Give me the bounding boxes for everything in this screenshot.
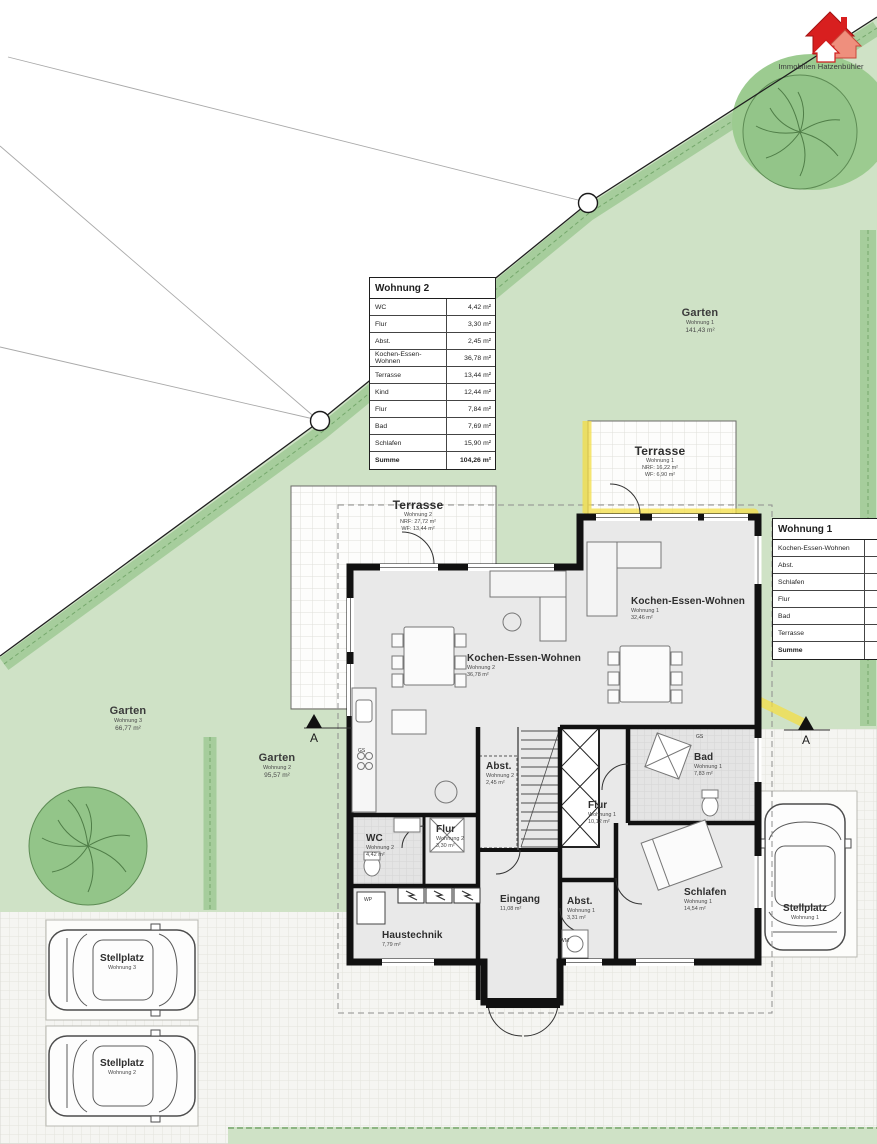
table-row: Kind12,44 m²: [370, 384, 495, 401]
row-label: Schlafen: [370, 435, 446, 451]
row-label: Kochen-Essen-Wohnen: [370, 350, 446, 366]
table-row: WC4,42 m²: [370, 299, 495, 316]
room-label-flur-w1: Flur Wohnung 1 10,12 m²: [588, 800, 616, 825]
area-table-wohnung-1: Wohnung 1 Kochen-Essen-Wohnen Abst. Schl…: [772, 518, 877, 660]
room-label-kochen-essen-wohnen-w1: Kochen-Essen-Wohnen Wohnung 1 32,46 m²: [631, 596, 745, 621]
row-value: 2,45 m²: [446, 333, 495, 349]
site-plan-drawing: [0, 0, 877, 1144]
row-value: 7,69 m²: [446, 418, 495, 434]
row-value: 7,84 m²: [446, 401, 495, 417]
label-wp: WP: [364, 897, 372, 903]
parking-label-wohnung-3: Stellplatz Wohnung 3: [62, 953, 182, 972]
row-value: 15,90 m²: [446, 435, 495, 451]
terrace-label-wohnung-2: Terrasse Wohnung 2 NRF: 27,72 m² WF: 13,…: [358, 498, 478, 532]
room-label-bad: Bad Wohnung 1 7,83 m²: [694, 752, 722, 777]
row-label: Summe: [773, 642, 864, 659]
room-label-eingang: Eingang 11,08 m²: [500, 894, 540, 913]
table-row: Bad7,69 m²: [370, 418, 495, 435]
row-label: Summe: [370, 452, 446, 469]
terrace-label-wohnung-1: Terrasse Wohnung 1 NRF: 16,22 m² WF: 6,9…: [600, 444, 720, 478]
table-row: Kochen-Essen-Wohnen36,78 m²: [370, 350, 495, 367]
row-value: [864, 557, 877, 573]
site-plan-canvas: Immobilien Hatzenbühler Wohnung 2 WC4,42…: [0, 0, 877, 1144]
label-gs-w2: GS: [358, 748, 365, 754]
row-value: 104,26 m²: [446, 452, 495, 469]
row-label: Schlafen: [773, 574, 864, 590]
table-row: Terrasse13,44 m²: [370, 367, 495, 384]
section-letter-left: A: [302, 731, 326, 745]
table-row: Abst.: [773, 557, 877, 574]
table-row: Schlafen15,90 m²: [370, 435, 495, 452]
row-label: Terrasse: [370, 367, 446, 383]
row-value: 4,42 m²: [446, 299, 495, 315]
row-value: [864, 540, 877, 556]
row-value: [864, 574, 877, 590]
room-label-schlafen: Schlafen Wohnung 1 14,54 m²: [684, 887, 726, 912]
room-label-abst-w1: Abst. Wohnung 1 3,31 m²: [567, 896, 595, 921]
row-label: Bad: [773, 608, 864, 624]
row-label: Kochen-Essen-Wohnen: [773, 540, 864, 556]
section-letter-right: A: [794, 733, 818, 747]
table-title: Wohnung 1: [773, 519, 877, 540]
tree-icon: [29, 787, 147, 905]
table-row: Flur3,30 m²: [370, 316, 495, 333]
table-row: Schlafen: [773, 574, 877, 591]
room-label-haustechnik: Haustechnik 7,79 m²: [382, 930, 443, 949]
table-row: Bad: [773, 608, 877, 625]
row-label: WC: [370, 299, 446, 315]
table-title: Wohnung 2: [370, 278, 495, 299]
room-label-abst-w2: Abst. Wohnung 2 2,45 m²: [486, 761, 514, 786]
row-label: Bad: [370, 418, 446, 434]
row-label: Flur: [370, 316, 446, 332]
row-value: 3,30 m²: [446, 316, 495, 332]
table-row: Kochen-Essen-Wohnen: [773, 540, 877, 557]
shaft: [561, 728, 599, 847]
table-row: Abst.2,45 m²: [370, 333, 495, 350]
garden-label-wohnung-1: Garten Wohnung 1 141,43 m²: [645, 307, 755, 335]
row-label: Kind: [370, 384, 446, 400]
room-label-wc: WC Wohnung 2 4,42 m²: [366, 833, 394, 858]
table-sum-row: Summe104,26 m²: [370, 452, 495, 469]
row-value: [864, 625, 877, 641]
label-gs-w1: GS: [696, 734, 703, 740]
row-value: [864, 642, 877, 659]
logo-text: Immobilien Hatzenbühler: [766, 62, 876, 71]
row-value: 36,78 m²: [446, 350, 495, 366]
row-label: Terrasse: [773, 625, 864, 641]
row-label: Flur: [370, 401, 446, 417]
area-table-wohnung-2: Wohnung 2 WC4,42 m² Flur3,30 m² Abst.2,4…: [369, 277, 496, 470]
table-row: Flur: [773, 591, 877, 608]
row-label: Abst.: [773, 557, 864, 573]
row-value: 12,44 m²: [446, 384, 495, 400]
parking-label-wohnung-2: Stellplatz Wohnung 2: [62, 1058, 182, 1077]
table-sum-row: Summe: [773, 642, 877, 659]
room-label-flur-w2: Flur Wohnung 2 3,30 m²: [436, 824, 464, 849]
row-value: [864, 608, 877, 624]
label-wm: WM: [560, 938, 569, 944]
table-row: Flur7,84 m²: [370, 401, 495, 418]
garden-label-wohnung-2: Garten Wohnung 2 95,57 m²: [222, 752, 332, 780]
row-label: Abst.: [370, 333, 446, 349]
garden-label-wohnung-3: Garten Wohnung 3 66,77 m²: [73, 705, 183, 733]
entrance-step: [486, 998, 560, 1008]
table-row: Terrasse: [773, 625, 877, 642]
car-icon: [759, 804, 851, 950]
parking-label-wohnung-1: Stellplatz Wohnung 1: [745, 903, 865, 922]
row-label: Flur: [773, 591, 864, 607]
row-value: [864, 591, 877, 607]
row-value: 13,44 m²: [446, 367, 495, 383]
room-label-kochen-essen-wohnen-w2: Kochen-Essen-Wohnen Wohnung 2 36,78 m²: [467, 653, 581, 678]
